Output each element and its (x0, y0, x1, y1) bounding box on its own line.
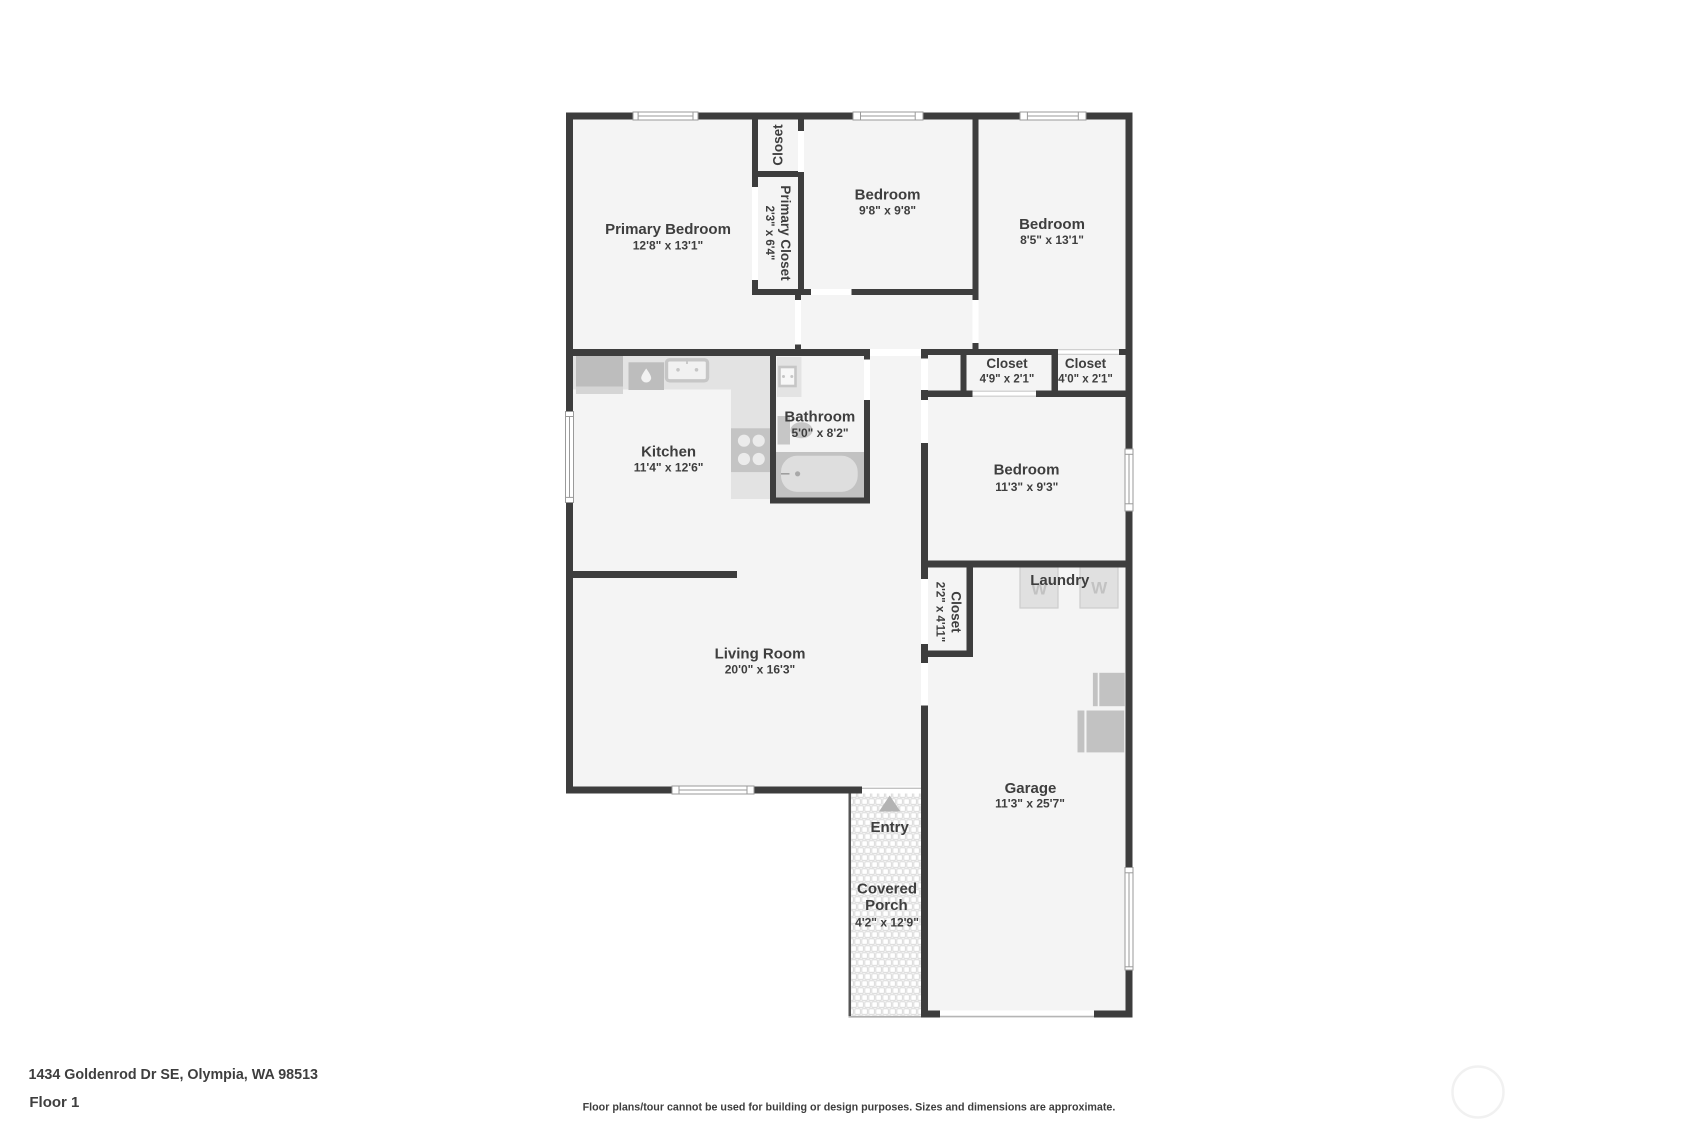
svg-text:Closet: Closet (986, 356, 1028, 371)
svg-text:9'8" x 9'8": 9'8" x 9'8" (859, 204, 916, 218)
svg-text:Primary Closet: Primary Closet (778, 185, 793, 281)
svg-text:11'3" x 9'3": 11'3" x 9'3" (995, 480, 1058, 494)
svg-text:Porch: Porch (865, 897, 908, 914)
svg-text:Garage: Garage (1005, 780, 1057, 797)
svg-text:4'9" x 2'1": 4'9" x 2'1" (980, 373, 1035, 385)
svg-text:Living Room: Living Room (715, 646, 806, 663)
svg-text:4'0" x 2'1": 4'0" x 2'1" (1058, 373, 1113, 385)
svg-text:20'0" x 16'3": 20'0" x 16'3" (725, 663, 795, 677)
svg-text:Bathroom: Bathroom (784, 409, 855, 426)
svg-text:Covered: Covered (857, 881, 917, 898)
svg-text:2'2" x 4'11": 2'2" x 4'11" (934, 582, 946, 643)
svg-text:11'3" x 25'7": 11'3" x 25'7" (995, 796, 1065, 810)
svg-text:Laundry: Laundry (1030, 572, 1090, 589)
svg-text:Closet: Closet (949, 591, 964, 633)
svg-text:5'0" x 8'2": 5'0" x 8'2" (791, 426, 848, 440)
svg-text:Bedroom: Bedroom (1019, 216, 1085, 233)
svg-text:Bedroom: Bedroom (855, 187, 921, 204)
svg-text:Bedroom: Bedroom (994, 462, 1060, 479)
svg-text:11'4" x 12'6": 11'4" x 12'6" (634, 461, 704, 475)
svg-text:Kitchen: Kitchen (641, 444, 696, 461)
svg-text:8'5" x 13'1": 8'5" x 13'1" (1020, 233, 1084, 247)
svg-text:Entry: Entry (871, 819, 910, 836)
svg-text:12'8" x 13'1": 12'8" x 13'1" (633, 239, 703, 253)
svg-text:Floor plans/tour cannot be use: Floor plans/tour cannot be used for buil… (583, 1102, 1116, 1114)
svg-text:4'2" x 12'9": 4'2" x 12'9" (855, 915, 919, 929)
svg-text:Floor 1: Floor 1 (29, 1094, 79, 1111)
svg-text:Closet: Closet (1065, 356, 1107, 371)
svg-text:2'3" x 6'4": 2'3" x 6'4" (763, 206, 775, 261)
svg-text:Primary Bedroom: Primary Bedroom (605, 221, 731, 238)
svg-text:Closet: Closet (770, 124, 785, 166)
svg-text:W: W (1091, 579, 1108, 598)
svg-text:1434 Goldenrod Dr SE, Olympia,: 1434 Goldenrod Dr SE, Olympia, WA 98513 (29, 1067, 319, 1083)
